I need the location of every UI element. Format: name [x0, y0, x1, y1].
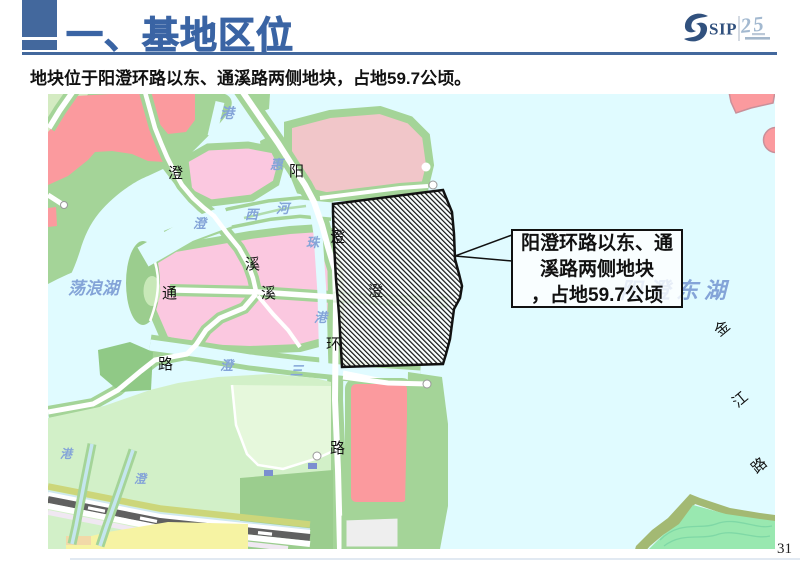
svg-text:港: 港: [314, 310, 329, 325]
svg-text:荡浪湖: 荡浪湖: [68, 279, 122, 298]
svg-text:溪路两侧地块: 溪路两侧地块: [540, 257, 655, 280]
svg-text:环: 环: [326, 336, 341, 353]
svg-text:惠: 惠: [270, 157, 285, 172]
svg-text:路: 路: [330, 440, 345, 457]
svg-text:阳澄环路以东、通: 阳澄环路以东、通: [521, 231, 674, 254]
svg-text:溪: 溪: [261, 285, 276, 302]
svg-text:澄: 澄: [134, 472, 148, 486]
svg-text:澄: 澄: [168, 165, 183, 182]
svg-text:阳: 阳: [289, 163, 304, 180]
svg-text:通: 通: [162, 285, 177, 302]
svg-text:澄: 澄: [330, 229, 345, 246]
svg-text:路: 路: [158, 356, 173, 373]
svg-text:，占地59.7公顷: ，占地59.7公顷: [531, 283, 663, 306]
svg-text:珠: 珠: [306, 235, 321, 250]
svg-text:SIP: SIP: [709, 20, 737, 39]
svg-text:三: 三: [290, 363, 305, 378]
svg-text:溪: 溪: [245, 256, 260, 273]
svg-text:港: 港: [60, 447, 74, 461]
